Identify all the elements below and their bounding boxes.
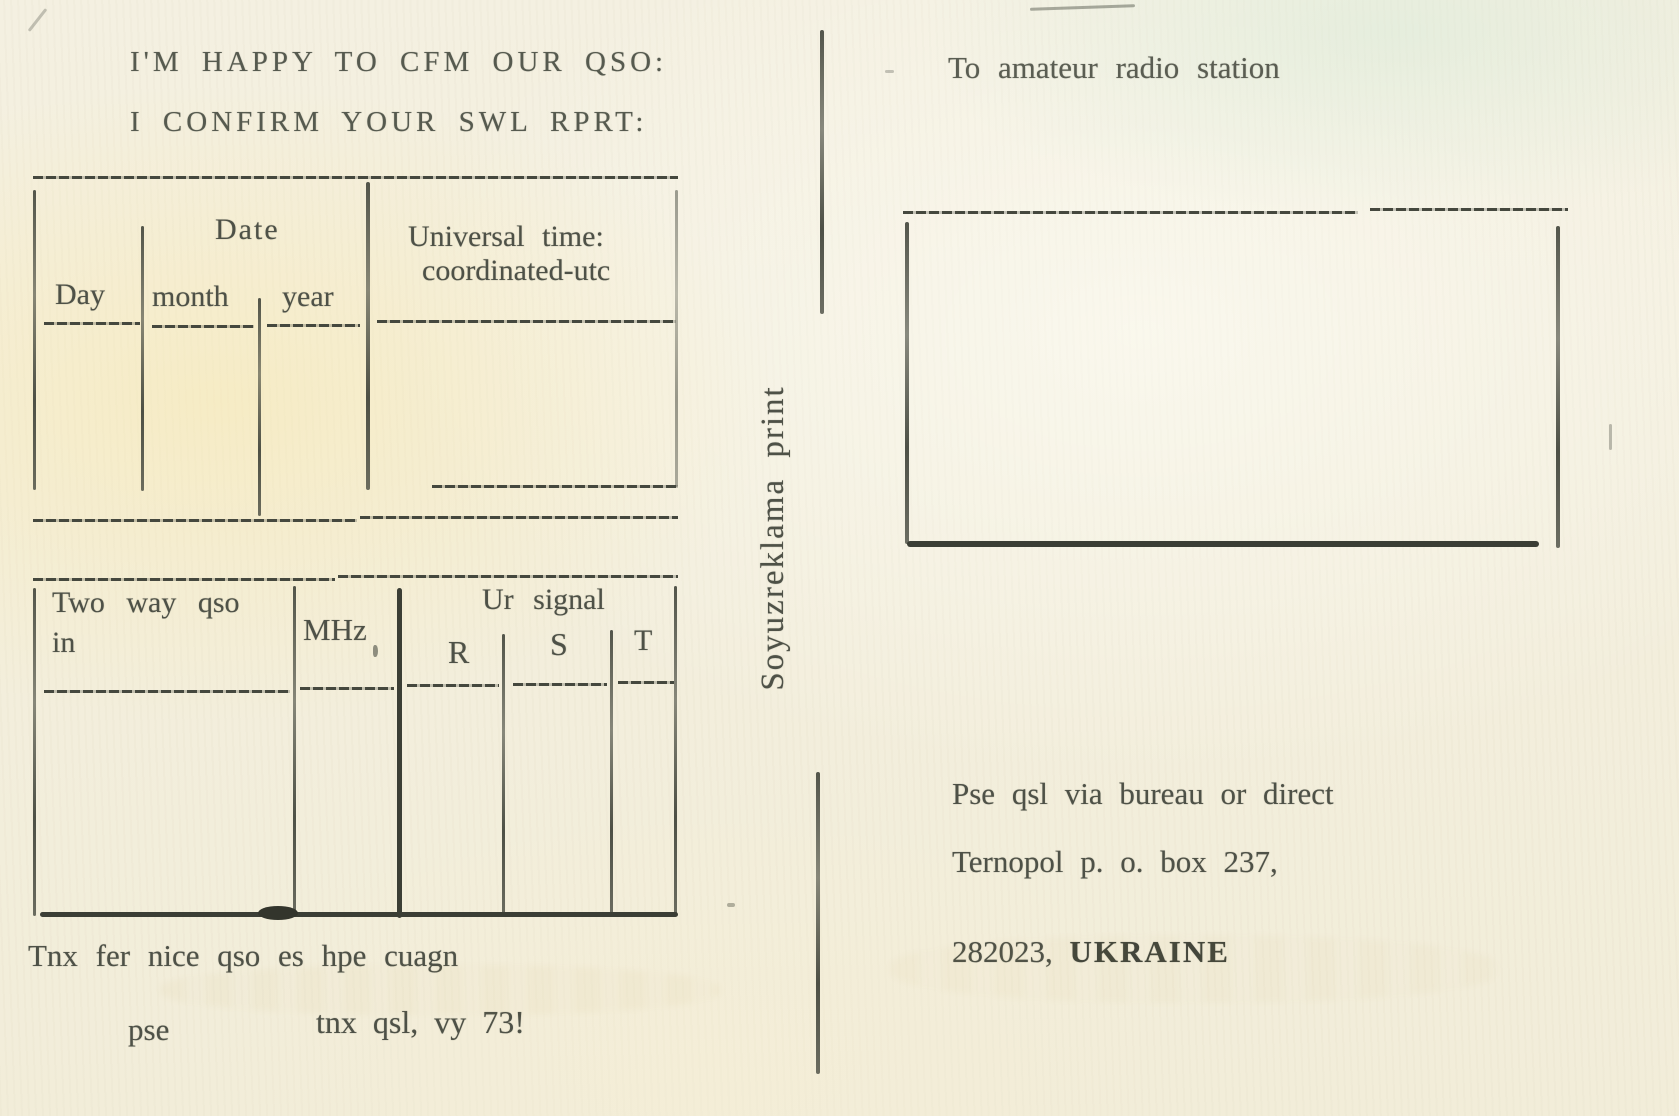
title-line-1: I'M HAPPY TO CFM OUR QSO:: [130, 46, 667, 79]
t-underline: [618, 681, 674, 684]
utc-header-line-2: coordinated-utc: [422, 254, 610, 288]
r-underline: [407, 684, 499, 687]
top-edge-mark: [1030, 4, 1135, 11]
date-table-divider-day-month: [141, 226, 144, 491]
closing-pse: pse: [128, 1012, 169, 1048]
qso-table-right-border: [674, 586, 677, 916]
qso-divider-s-t: [610, 630, 613, 916]
to-station-label: To amateur radio station: [948, 50, 1280, 86]
qso-mode-label-line-1: Two way qso: [52, 586, 240, 620]
mhz-column-label: MHz: [303, 612, 367, 648]
center-divider-bottom-segment: [816, 772, 820, 1074]
date-table-right-border: [675, 190, 678, 487]
edge-tick-center: [727, 903, 735, 907]
qso-table-left-border: [33, 588, 36, 916]
date-table-divider-month-year: [258, 298, 261, 516]
signal-group-header: Ur signal: [482, 583, 605, 617]
ink-blob: [258, 906, 298, 920]
edge-tick-left: [885, 70, 894, 73]
qso-mode-label-line-2: in: [52, 626, 75, 660]
title-line-2: I CONFIRM YOUR SWL RPRT:: [130, 106, 647, 139]
s-column-label: S: [550, 626, 568, 663]
year-column-label: year: [282, 280, 334, 314]
r-column-label: R: [448, 634, 469, 671]
date-table-top-border: [33, 176, 678, 179]
date-table-left-border: [33, 190, 36, 490]
mhz-underline: [300, 687, 394, 690]
address-box-top-border-left: [903, 211, 1358, 214]
qsl-route-line-1: Pse qsl via bureau or direct: [952, 776, 1334, 812]
address-box-left-border: [905, 222, 909, 544]
qso-table-top-rule-left: [33, 578, 335, 581]
mode-underline: [44, 690, 290, 693]
date-table-bottom-rule-left: [33, 519, 357, 522]
ghost-print-right: [890, 935, 1500, 1003]
qso-table-bottom-rule: [40, 912, 678, 917]
qso-divider-mode-mhz: [293, 586, 296, 916]
address-box-bottom-border: [907, 541, 1539, 547]
mhz-comma-speck: [373, 645, 378, 657]
address-box-right-border: [1556, 226, 1560, 548]
year-underline: [267, 324, 360, 327]
qso-divider-r-s: [502, 634, 505, 916]
printer-credit: Soyuzreklama print: [755, 338, 799, 738]
month-column-label: month: [152, 280, 229, 314]
qso-divider-mhz-signal: [397, 588, 402, 918]
qsl-card-back: I'M HAPPY TO CFM OUR QSO: I CONFIRM YOUR…: [0, 0, 1679, 1116]
corner-mark: [28, 8, 48, 32]
s-underline: [513, 683, 607, 686]
day-underline: [44, 322, 140, 325]
address-box-top-border-right: [1370, 208, 1568, 211]
month-underline: [152, 325, 254, 328]
date-table-divider-year-utc: [366, 182, 370, 490]
ghost-print-left: [160, 965, 720, 1015]
qsl-route-line-2: Ternopol p. o. box 237,: [952, 844, 1278, 880]
t-column-label: T: [634, 624, 652, 658]
qso-table-top-rule-right: [338, 575, 678, 578]
day-column-label: Day: [55, 278, 105, 312]
utc-column-bottom-rule: [432, 485, 678, 488]
date-table-bottom-rule-right: [360, 516, 678, 519]
center-divider-top-segment: [820, 30, 824, 314]
edge-tick-right: [1609, 424, 1612, 450]
utc-header-line-1: Universal time:: [408, 220, 604, 254]
utc-underline: [377, 320, 676, 323]
date-group-header: Date: [215, 213, 280, 247]
